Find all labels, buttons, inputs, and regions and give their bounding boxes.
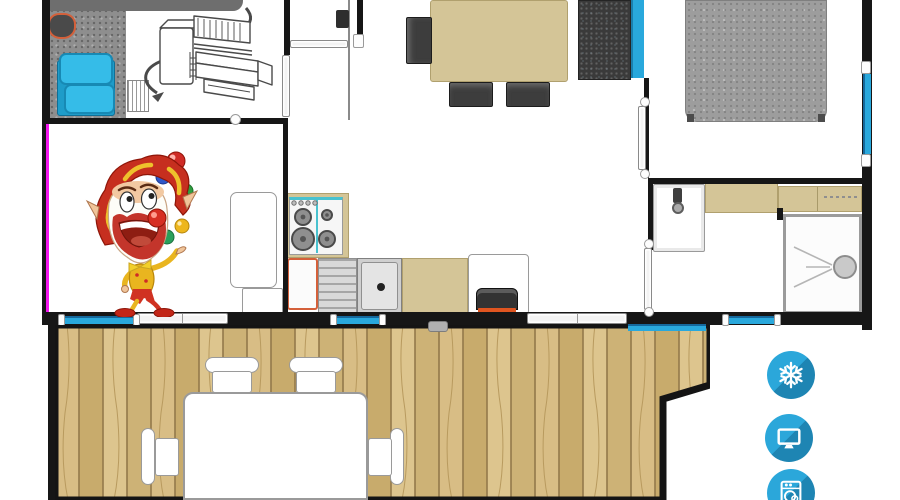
kitchen-counter (402, 258, 468, 315)
snowflake-icon (776, 360, 806, 390)
window-cap (774, 314, 781, 326)
deck-chair-seat (212, 371, 252, 393)
wall (648, 178, 862, 184)
doormat (428, 321, 448, 332)
double-bed (685, 0, 827, 122)
bathroom-cabinet (778, 186, 862, 212)
deck-chair-back (390, 428, 404, 485)
bed-foot (818, 114, 825, 122)
door-hinge (353, 34, 364, 48)
sofa-blue-cushion (631, 0, 644, 78)
hob-burners (289, 197, 343, 255)
washer-icon (776, 478, 806, 500)
blue-pillow (64, 84, 115, 114)
countertop-appliance (476, 288, 518, 310)
sink-drainer (318, 258, 357, 314)
washing-machine-icon (767, 469, 815, 500)
door-hinge (230, 114, 241, 125)
wall (42, 118, 288, 124)
window (63, 316, 137, 324)
bathroom-counter (705, 183, 778, 213)
wall-mounted-tv (336, 10, 349, 28)
window (727, 316, 777, 324)
wall (283, 124, 288, 314)
door-hinge (644, 239, 654, 249)
window-cap (861, 154, 871, 167)
air-conditioning-icon (767, 351, 815, 399)
cabinet-handle-dashes (824, 196, 858, 198)
deck-chair-back (141, 428, 155, 485)
dining-chair (449, 82, 493, 107)
floor-plan-image (0, 0, 900, 500)
sink-drain (377, 283, 385, 291)
deck-chair-seat (155, 438, 179, 476)
bunk-bed-sketch (130, 6, 285, 114)
dining-chair (506, 82, 550, 107)
window (335, 316, 382, 324)
magenta-wall-accent (46, 123, 49, 312)
dining-chair (406, 17, 432, 64)
cabinet-divider (817, 187, 818, 211)
door-hinge (640, 97, 650, 107)
wall (284, 0, 290, 55)
door-leaf (290, 40, 348, 48)
basin-drain (672, 202, 684, 214)
door-hinge (644, 307, 654, 317)
wall (777, 208, 783, 220)
tv-amenity-icon (765, 414, 813, 462)
blue-pillow (59, 53, 113, 85)
sliding-door-divider (577, 314, 578, 323)
bedroom-door-leaf (638, 106, 646, 170)
under-counter-appliance (287, 258, 318, 310)
window-cap (722, 314, 729, 326)
bed-foot (687, 114, 694, 122)
basin-faucet (673, 188, 682, 203)
bathroom-door-leaf (644, 248, 652, 310)
shower-spray (786, 217, 859, 311)
door-leaf (282, 55, 290, 117)
tv-icon (774, 423, 804, 453)
wall (42, 0, 50, 123)
window (863, 74, 871, 154)
sofa (578, 0, 631, 80)
deck-chair-seat (368, 438, 392, 476)
window-cap (861, 61, 871, 74)
deck-table (183, 392, 368, 500)
dining-table (430, 0, 568, 82)
door-hinge (640, 169, 650, 179)
wall (357, 0, 363, 36)
kids-room-rug (48, 13, 76, 39)
deck-chair-seat (296, 371, 336, 393)
clown-illustration (75, 145, 265, 317)
deck-window-strip (628, 324, 706, 331)
